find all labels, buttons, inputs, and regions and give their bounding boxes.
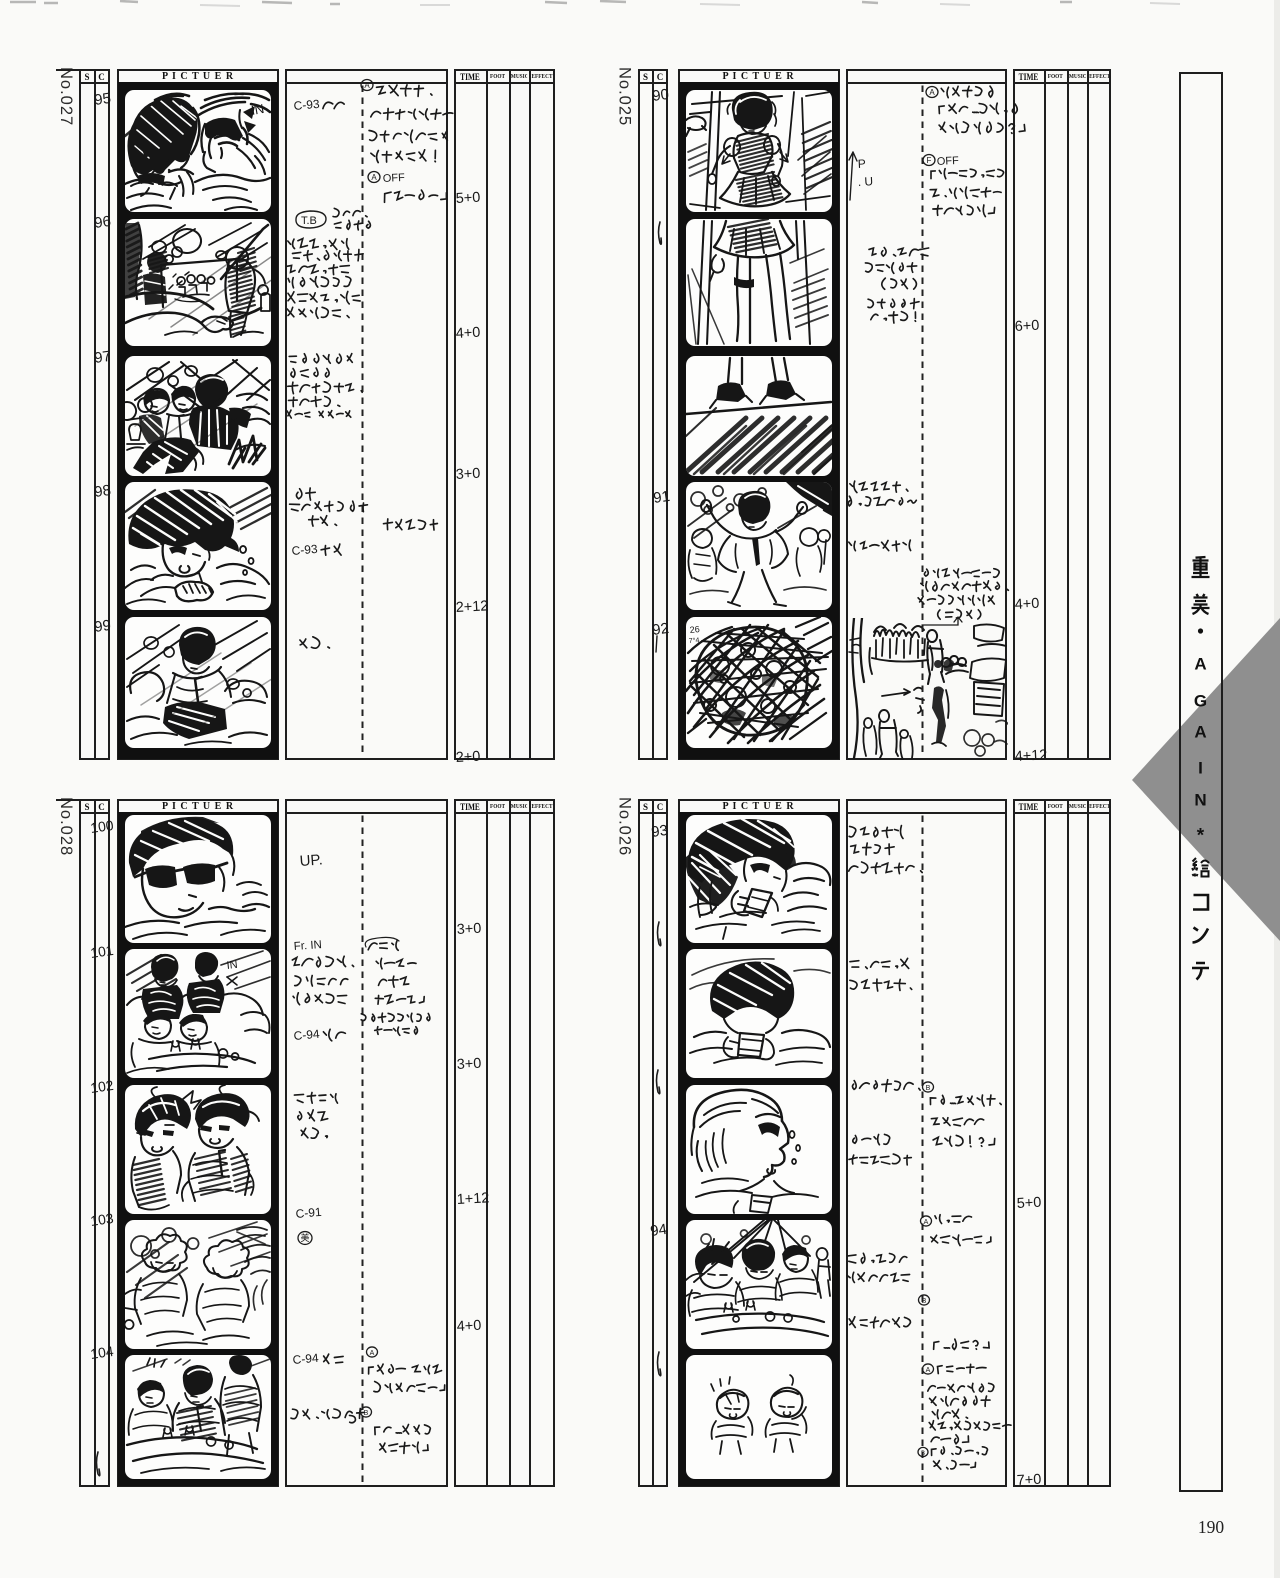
svg-text:C-93: C-93: [293, 97, 320, 113]
svg-text:B: B: [922, 1298, 927, 1305]
svg-text:91: 91: [652, 488, 671, 507]
svg-text:5+0: 5+0: [1016, 1195, 1041, 1212]
svg-text:104: 104: [89, 1343, 115, 1362]
svg-text:97: 97: [93, 348, 112, 367]
svg-text:95: 95: [93, 90, 112, 109]
svg-text:2+0: 2+0: [455, 749, 480, 766]
svg-text:C-94: C-94: [292, 1351, 319, 1367]
svg-text:A: A: [929, 88, 935, 97]
svg-text:美: 美: [300, 1232, 309, 1243]
svg-text:B: B: [921, 1451, 925, 1457]
svg-text:B: B: [364, 1410, 369, 1417]
svg-text:3+0: 3+0: [456, 921, 481, 938]
svg-text:92: 92: [651, 620, 670, 639]
svg-text:Fr. IN: Fr. IN: [293, 939, 322, 953]
svg-text:3+0: 3+0: [456, 1056, 481, 1073]
svg-text:96: 96: [93, 213, 112, 232]
svg-text:A: A: [926, 1367, 931, 1374]
svg-text:P: P: [857, 157, 866, 171]
svg-text:OFF: OFF: [383, 172, 406, 185]
svg-text:103: 103: [89, 1210, 115, 1229]
svg-text:C-93: C-93: [291, 542, 318, 558]
svg-text:C-94: C-94: [293, 1027, 320, 1043]
svg-text:100: 100: [89, 817, 115, 836]
svg-text:B: B: [926, 1085, 931, 1092]
svg-text:102: 102: [89, 1077, 115, 1096]
svg-text:. U: . U: [857, 174, 873, 189]
svg-text:1+12: 1+12: [456, 1190, 489, 1208]
svg-text:T.B: T.B: [301, 215, 317, 227]
svg-text:A: A: [364, 81, 370, 90]
svg-text:90: 90: [651, 86, 670, 105]
svg-text:4+12: 4+12: [1014, 747, 1047, 765]
svg-text:101: 101: [89, 942, 115, 961]
svg-text:99: 99: [93, 617, 112, 636]
svg-text:5+0: 5+0: [455, 190, 480, 207]
svg-text:4+0: 4+0: [455, 325, 480, 342]
svg-text:94: 94: [649, 1221, 668, 1240]
svg-text:6+0: 6+0: [1014, 318, 1039, 335]
svg-text:7+0: 7+0: [1016, 1472, 1041, 1489]
svg-text:98: 98: [93, 482, 112, 501]
svg-text:2+12: 2+12: [455, 598, 488, 616]
svg-text:F: F: [927, 156, 932, 165]
svg-text:A: A: [924, 1219, 929, 1226]
svg-text:OFF: OFF: [937, 155, 960, 168]
svg-text:C-91: C-91: [295, 1205, 322, 1221]
svg-text:3+0: 3+0: [455, 466, 480, 483]
svg-text:UP.: UP.: [299, 851, 323, 870]
svg-text:4+0: 4+0: [456, 1318, 481, 1335]
svg-text:4+0: 4+0: [1014, 596, 1039, 613]
svg-text:A: A: [370, 1350, 375, 1357]
svg-text:93: 93: [650, 822, 669, 841]
svg-text:A: A: [371, 173, 377, 182]
